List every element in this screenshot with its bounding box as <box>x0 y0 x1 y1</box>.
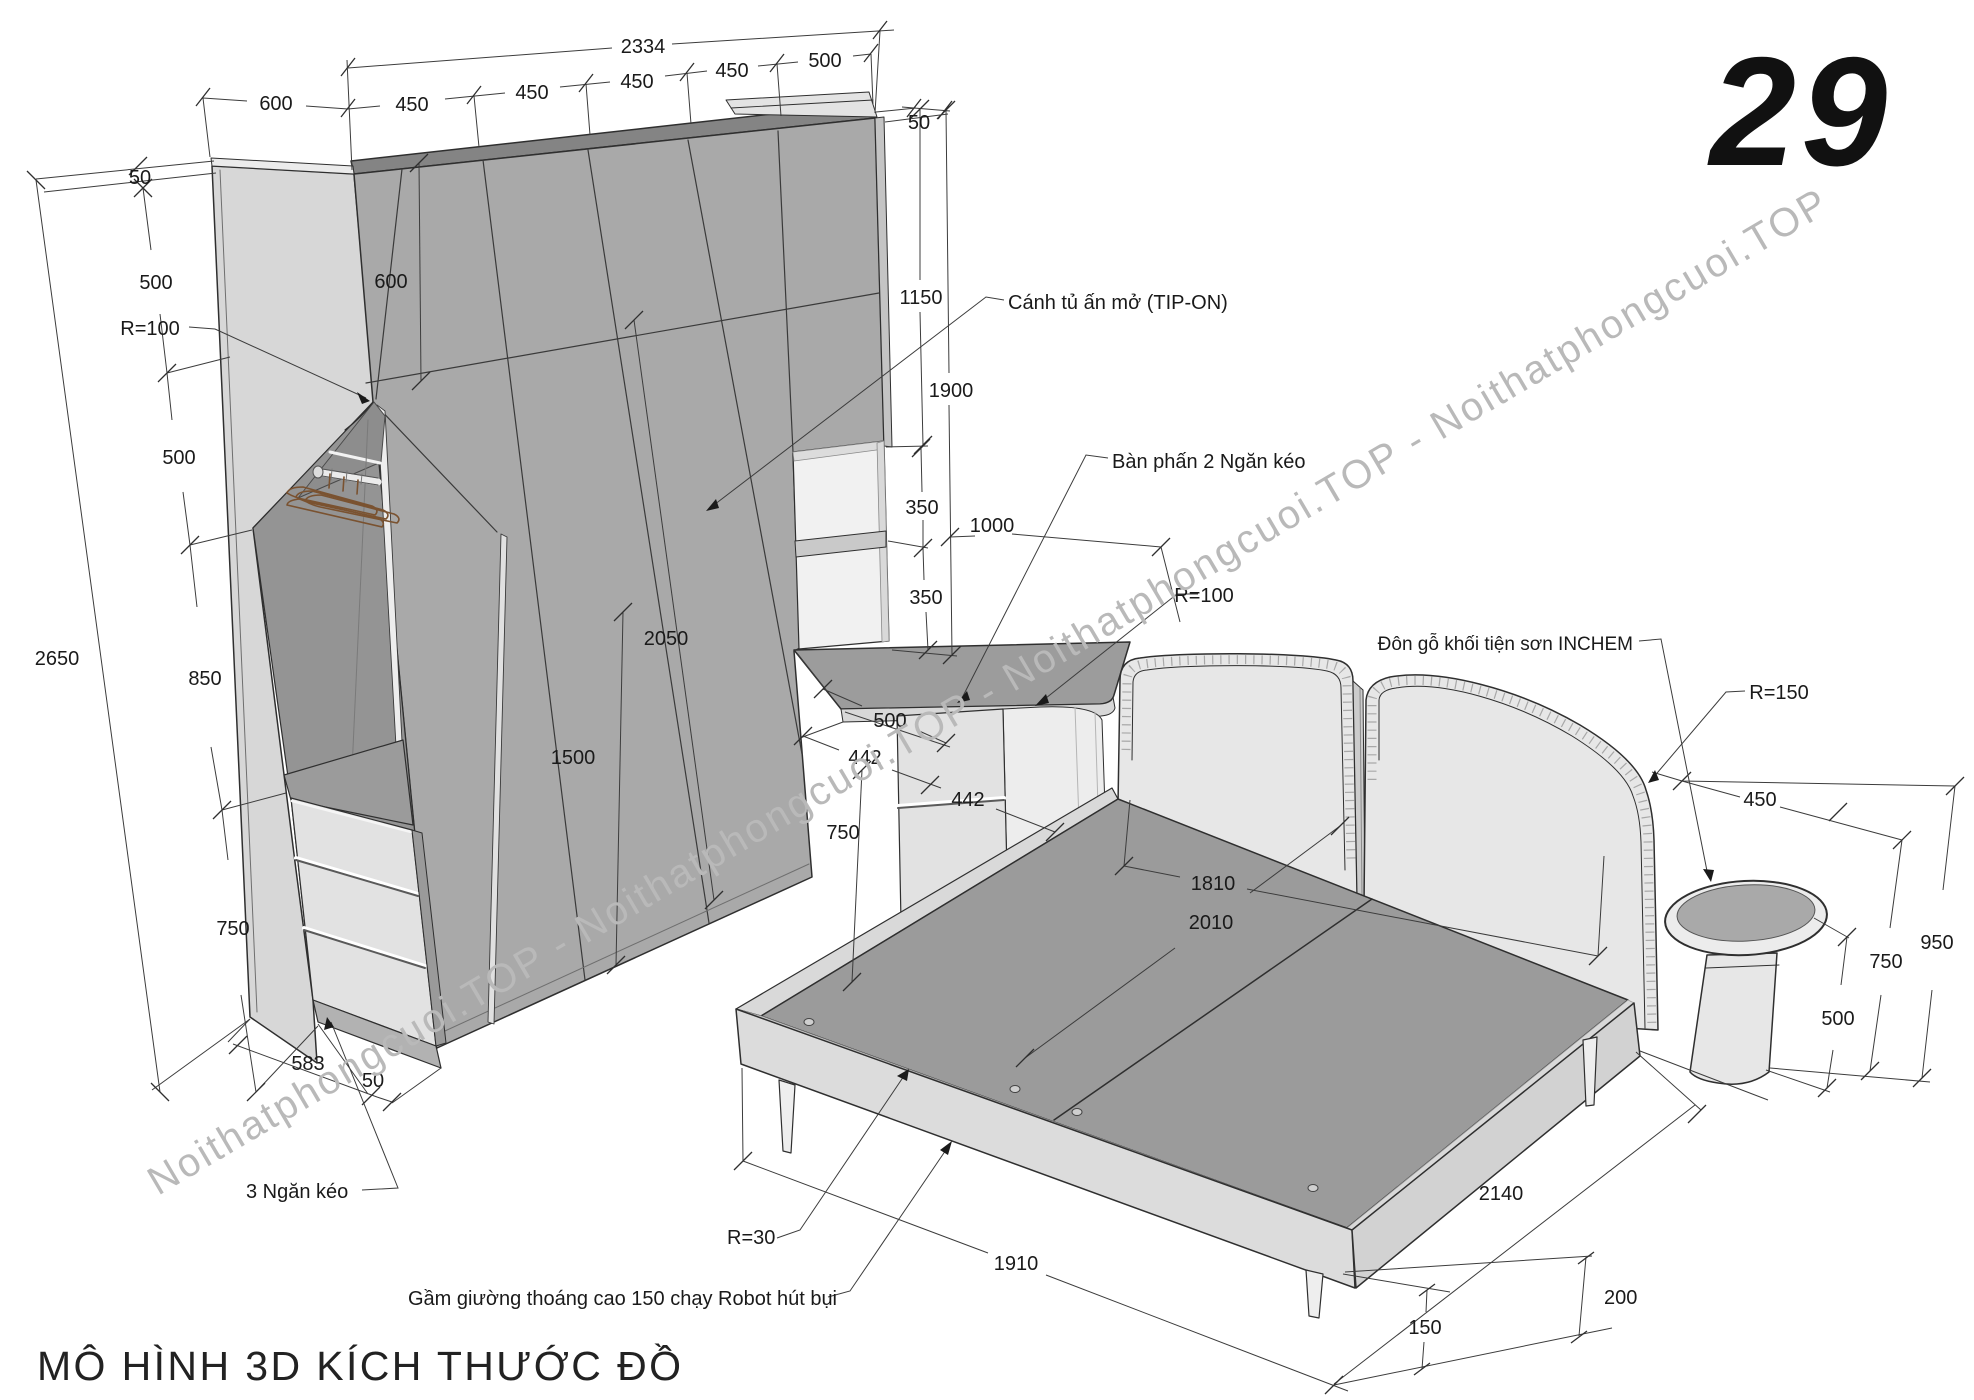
svg-text:1900: 1900 <box>929 380 974 402</box>
svg-text:50: 50 <box>908 112 930 134</box>
svg-text:2650: 2650 <box>35 648 80 670</box>
svg-text:2050: 2050 <box>644 628 689 650</box>
svg-text:450: 450 <box>1743 789 1776 811</box>
svg-text:MÔ HÌNH 3D KÍCH THƯỚC ĐỒ: MÔ HÌNH 3D KÍCH THƯỚC ĐỒ <box>37 1343 683 1389</box>
svg-text:450: 450 <box>620 71 653 93</box>
svg-text:R=100: R=100 <box>120 318 180 340</box>
svg-text:1150: 1150 <box>899 287 942 309</box>
svg-text:600: 600 <box>374 271 407 293</box>
svg-text:R=150: R=150 <box>1749 682 1809 704</box>
svg-text:Bàn phấn 2 Ngăn kéo: Bàn phấn 2 Ngăn kéo <box>1112 451 1306 473</box>
svg-text:R=30: R=30 <box>727 1227 775 1249</box>
svg-text:150: 150 <box>1408 1317 1441 1339</box>
svg-text:1810: 1810 <box>1191 873 1236 895</box>
svg-text:600: 600 <box>259 93 292 115</box>
svg-text:50: 50 <box>129 167 151 189</box>
svg-text:1910: 1910 <box>994 1253 1039 1275</box>
svg-text:450: 450 <box>395 94 428 116</box>
svg-text:500: 500 <box>808 50 841 72</box>
svg-text:750: 750 <box>826 822 859 844</box>
svg-text:1500: 1500 <box>551 747 596 769</box>
svg-text:3 Ngăn kéo: 3 Ngăn kéo <box>246 1181 348 1203</box>
svg-text:Đôn gỗ khối tiện sơn INCHEM: Đôn gỗ khối tiện sơn INCHEM <box>1378 633 1633 655</box>
svg-text:350: 350 <box>905 497 938 519</box>
svg-text:2334: 2334 <box>621 36 666 58</box>
svg-text:442: 442 <box>951 789 984 811</box>
svg-text:350: 350 <box>909 587 942 609</box>
svg-text:Gầm giường thoáng cao 150 chạy: Gầm giường thoáng cao 150 chạy Robot hút… <box>408 1288 837 1310</box>
svg-text:Cánh tủ ấn mở (TIP-ON): Cánh tủ ấn mở (TIP-ON) <box>1008 292 1228 314</box>
svg-text:450: 450 <box>515 82 548 104</box>
svg-text:500: 500 <box>139 272 172 294</box>
svg-text:750: 750 <box>1869 951 1902 973</box>
svg-text:2140: 2140 <box>1479 1183 1524 1205</box>
svg-text:1000: 1000 <box>970 515 1015 537</box>
svg-text:950: 950 <box>1920 932 1953 954</box>
svg-text:850: 850 <box>188 668 221 690</box>
svg-text:450: 450 <box>715 60 748 82</box>
svg-text:200: 200 <box>1604 1287 1637 1309</box>
svg-text:500: 500 <box>162 447 195 469</box>
svg-text:750: 750 <box>216 918 249 940</box>
svg-text:2010: 2010 <box>1189 912 1234 934</box>
svg-text:29: 29 <box>1707 25 1892 198</box>
svg-text:500: 500 <box>1821 1008 1854 1030</box>
